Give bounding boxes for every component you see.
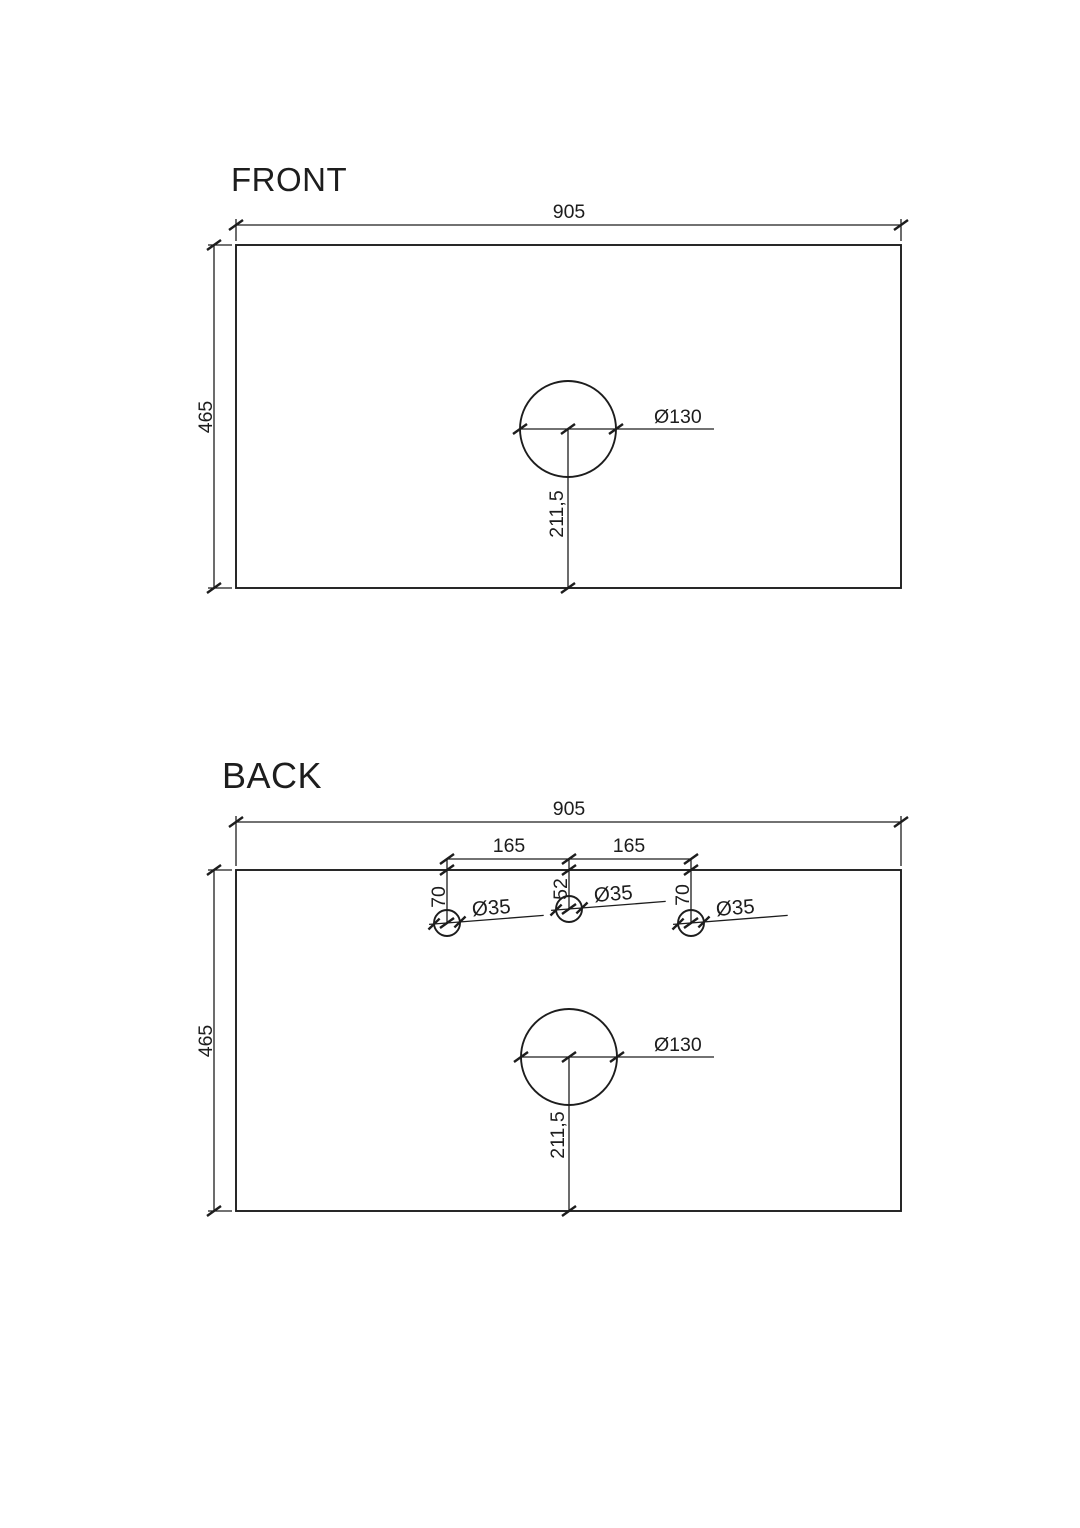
front-height-dimension: 465 <box>195 240 232 593</box>
front-hole-offset-label: 211,5 <box>546 490 568 538</box>
back-height-dimension: 465 <box>195 865 232 1216</box>
front-hole-diameter-dimension: Ø130 <box>513 406 714 434</box>
front-hole-diameter-label: Ø130 <box>654 406 702 428</box>
back-width-dimension: 905 <box>229 798 908 866</box>
front-view: FRONT 905 465 Ø130 <box>195 161 908 593</box>
tap-spacing-left-label: 165 <box>493 835 526 857</box>
back-width-label: 905 <box>553 798 586 820</box>
technical-drawing: FRONT 905 465 Ø130 <box>0 0 1080 1528</box>
tap-depth-label: 70 <box>428 886 450 908</box>
front-width-label: 905 <box>553 201 586 223</box>
tap-diameter-label: Ø35 <box>715 895 755 921</box>
front-width-dimension: 905 <box>229 201 908 241</box>
drawing-sheet: FRONT 905 465 Ø130 <box>0 0 1080 1528</box>
tap-hole-middle: 52 Ø35 <box>548 859 666 922</box>
back-hole-offset-label: 211,5 <box>547 1111 569 1159</box>
front-view-title: FRONT <box>231 161 347 198</box>
back-hole-offset-dimension: 211,5 <box>547 1052 576 1216</box>
tap-depth-label: 52 <box>550 878 572 900</box>
back-hole-diameter-label: Ø130 <box>654 1034 702 1056</box>
back-view: BACK 905 465 165 165 <box>195 755 908 1216</box>
back-height-label: 465 <box>195 1025 217 1058</box>
front-hole-offset-dimension: 211,5 <box>546 424 575 593</box>
tap-diameter-label: Ø35 <box>593 881 633 907</box>
back-view-title: BACK <box>222 755 322 796</box>
tap-depth-label: 70 <box>672 884 694 906</box>
tap-spacing-right-label: 165 <box>613 835 646 857</box>
tap-diameter-label: Ø35 <box>471 895 511 921</box>
front-height-label: 465 <box>195 401 217 434</box>
